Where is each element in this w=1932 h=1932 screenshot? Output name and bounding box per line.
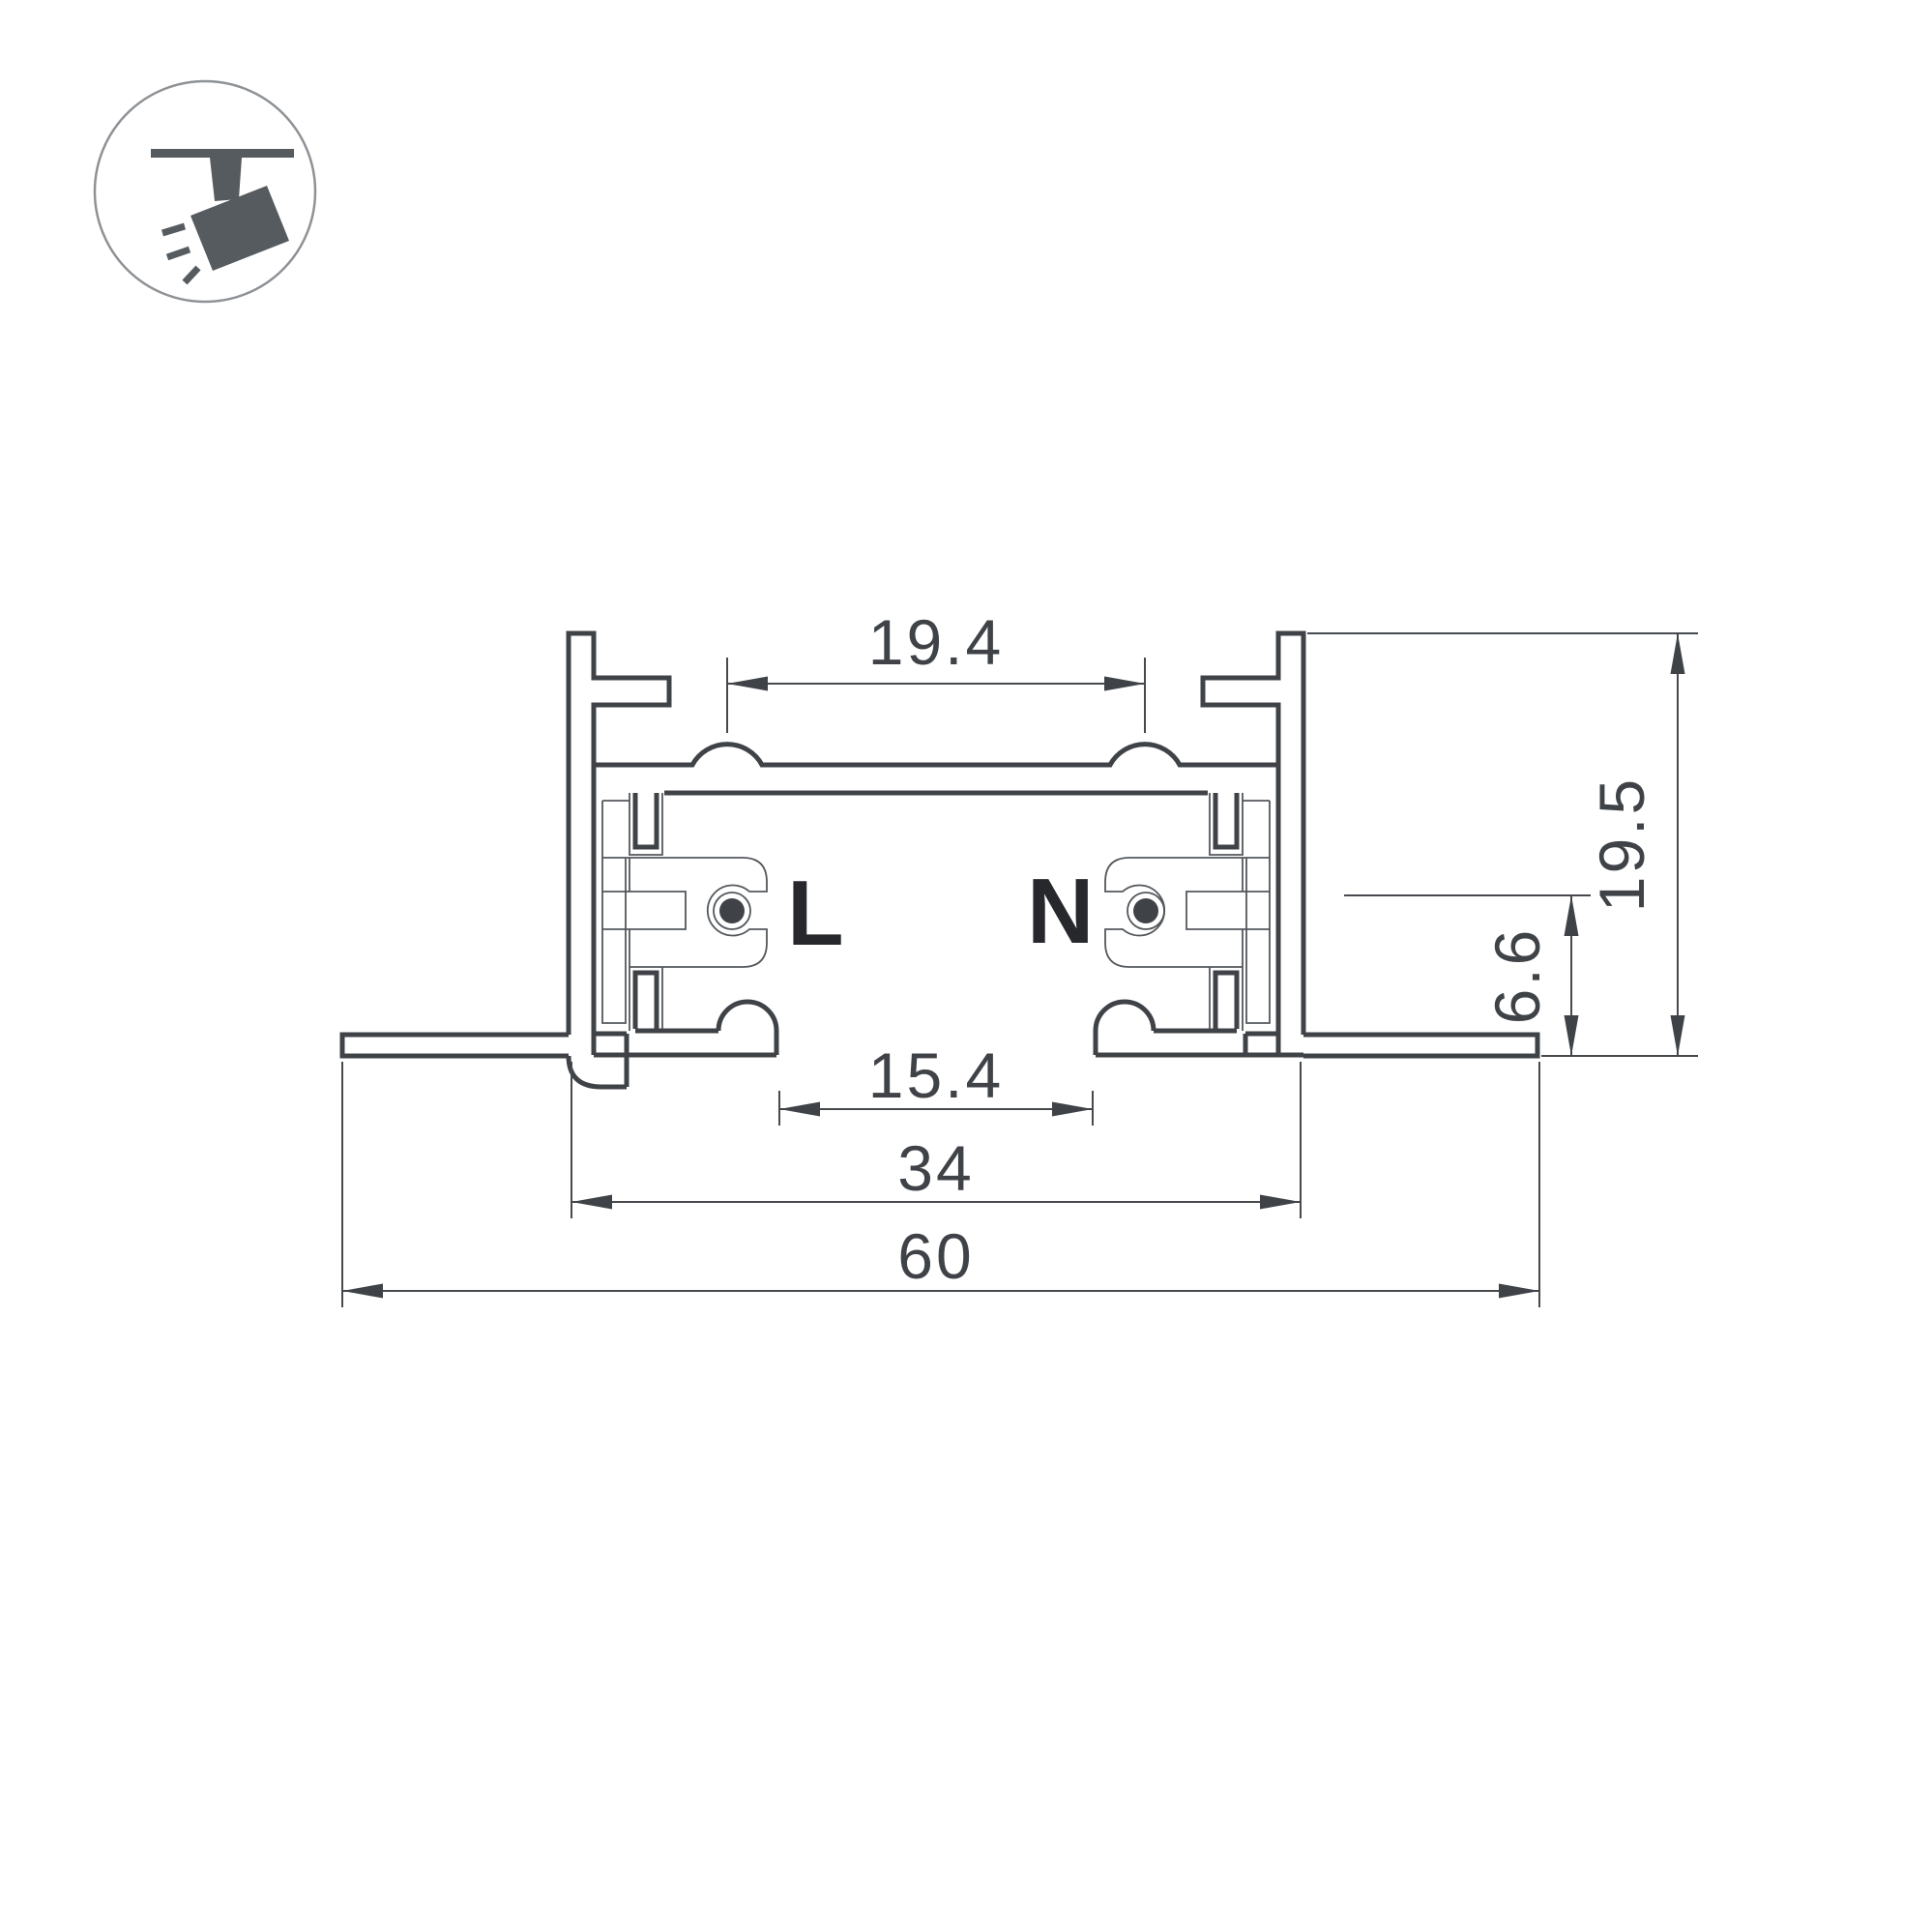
spotlight-stem-icon [210,158,242,201]
dimension-value: 6.6 [1481,927,1553,1025]
dimension-value: 19.4 [868,606,1004,678]
neutral-conductor-dot [1133,898,1158,923]
dimension-value: 15.4 [868,1039,1004,1111]
dimension-value: 34 [897,1132,974,1204]
live-conductor-label: L [787,862,844,965]
track-bar-icon [151,149,294,158]
dimension-value: 60 [897,1220,974,1292]
technical-drawing: L N 19.4 19.5 [0,0,1932,1932]
drawing-canvas: L N 19.4 19.5 [0,0,1932,1932]
live-conductor-dot [719,898,745,923]
neutral-conductor-label: N [1027,860,1094,963]
dimension-value: 19.5 [1586,776,1657,912]
background [0,0,1932,1932]
